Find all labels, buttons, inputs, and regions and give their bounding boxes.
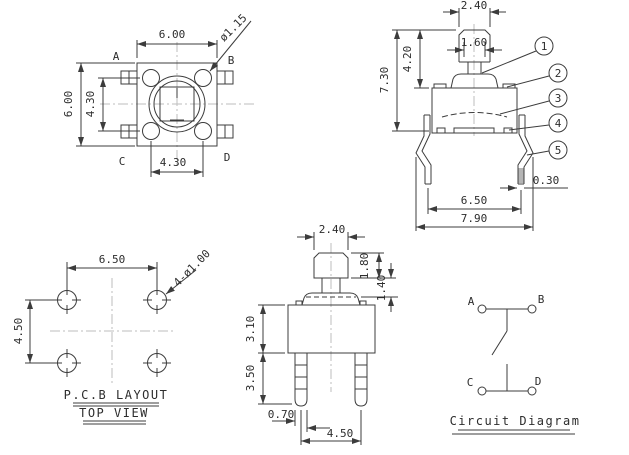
callout-leader-4 — [509, 125, 549, 130]
hole-note-label: 4-ø1.00 — [171, 247, 213, 289]
terminal-d-circle — [528, 387, 536, 395]
collar-foot-left — [296, 301, 302, 305]
dim-neck-height-label: 1.40 — [375, 275, 388, 302]
terminal-c-label: C — [467, 376, 474, 389]
pin-label-d: D — [224, 151, 231, 164]
pin-label-c: C — [119, 155, 126, 168]
pcb-layout-view: 6.50 4.50 4-ø1.00 P.C.B LAYOUT TOP VIEW — [12, 247, 213, 424]
leg-left-outer — [416, 115, 425, 184]
dim-hole-span-h-label: 6.50 — [99, 253, 126, 266]
leg-left-inner — [422, 115, 431, 184]
pcb-title: P.C.B LAYOUT — [64, 388, 169, 402]
dim-leg-span-label: 6.50 — [461, 194, 488, 207]
callout-leader-2 — [507, 76, 549, 87]
terminal-b-circle — [528, 305, 536, 313]
terminal-b-label: B — [538, 293, 545, 306]
side-view: 2.40 1.60 4.20 7.30 0.30 6.50 7.90 1 — [378, 0, 568, 231]
pin-circle-d — [195, 123, 212, 140]
dim-height-label: 6.00 — [62, 91, 75, 118]
collar-foot-right — [360, 301, 366, 305]
dim-body-height-label: 3.10 — [244, 316, 257, 343]
dim-leg-length-label: 3.50 — [244, 365, 257, 392]
top-view: 6.00 ø1.15 6.00 4.30 4.30 A B C D — [62, 12, 255, 177]
callout-3-label: 3 — [555, 92, 562, 105]
pcb-subtitle: TOP VIEW — [79, 406, 149, 420]
dim-total-height-label: 7.30 — [378, 67, 391, 94]
dim-cap-height-label: 1.80 — [358, 253, 371, 280]
flange-tab-left — [434, 84, 446, 88]
bottom-foot-right — [504, 128, 512, 133]
dim-hole-span-v-label: 4.50 — [12, 318, 25, 345]
dim-pin-horizontal-label: 4.30 — [160, 156, 187, 169]
dim-total-width-label: 7.90 — [461, 212, 488, 225]
circuit-title: Circuit Diagram — [450, 414, 581, 428]
bottom-foot-left — [437, 128, 445, 133]
button-dia-label: ø1.15 — [217, 12, 250, 45]
dim-leg-span-label: 4.50 — [327, 427, 354, 440]
pin-circle-c — [143, 123, 160, 140]
leg-right-outer — [524, 115, 533, 184]
leg-right — [355, 353, 367, 406]
pin-label-a: A — [113, 50, 120, 63]
dim-stem-width-label: 1.60 — [461, 36, 488, 49]
front-view: 2.40 1.80 1.40 3.10 3.50 0.70 4.50 — [244, 223, 398, 445]
leg-tip-highlight — [519, 168, 524, 183]
terminal-c-circle — [478, 387, 486, 395]
terminal-a-circle — [478, 305, 486, 313]
engineering-drawing-canvas: 6.00 ø1.15 6.00 4.30 4.30 A B C D — [0, 0, 629, 450]
callout-4-label: 4 — [555, 117, 562, 130]
leg-left — [295, 353, 307, 406]
pin-label-b: B — [228, 54, 235, 67]
tact-switch-drawing: 6.00 ø1.15 6.00 4.30 4.30 A B C D — [0, 0, 629, 450]
callout-2-label: 2 — [555, 67, 562, 80]
dim-pin-vertical-label: 4.30 — [84, 91, 97, 118]
dim-width-label: 6.00 — [159, 28, 186, 41]
dim-leg-thickness-label: 0.30 — [533, 174, 560, 187]
circuit-diagram: A B C D Circuit Diagram — [450, 293, 581, 434]
callout-5-label: 5 — [555, 144, 562, 157]
terminal-d-label: D — [535, 375, 542, 388]
callout-1-label: 1 — [541, 40, 548, 53]
callout-leader-5 — [527, 151, 549, 155]
callout-leader-3 — [500, 101, 549, 114]
terminal-a-label: A — [468, 295, 475, 308]
dim-stem-height-label: 4.20 — [401, 46, 414, 73]
dim-cap-width-label: 2.40 — [461, 0, 488, 12]
dim-leg-width-label: 0.70 — [268, 408, 295, 421]
dim-cap-width-label: 2.40 — [319, 223, 346, 236]
switch-arm — [492, 331, 507, 355]
